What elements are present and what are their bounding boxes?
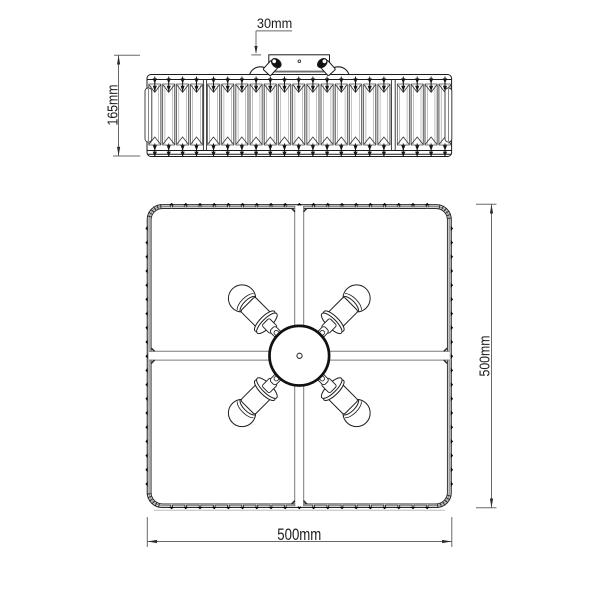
svg-text:165mm: 165mm: [106, 85, 122, 126]
svg-text:500mm: 500mm: [477, 336, 493, 377]
svg-text:500mm: 500mm: [277, 526, 321, 544]
svg-text:30mm: 30mm: [257, 15, 292, 31]
